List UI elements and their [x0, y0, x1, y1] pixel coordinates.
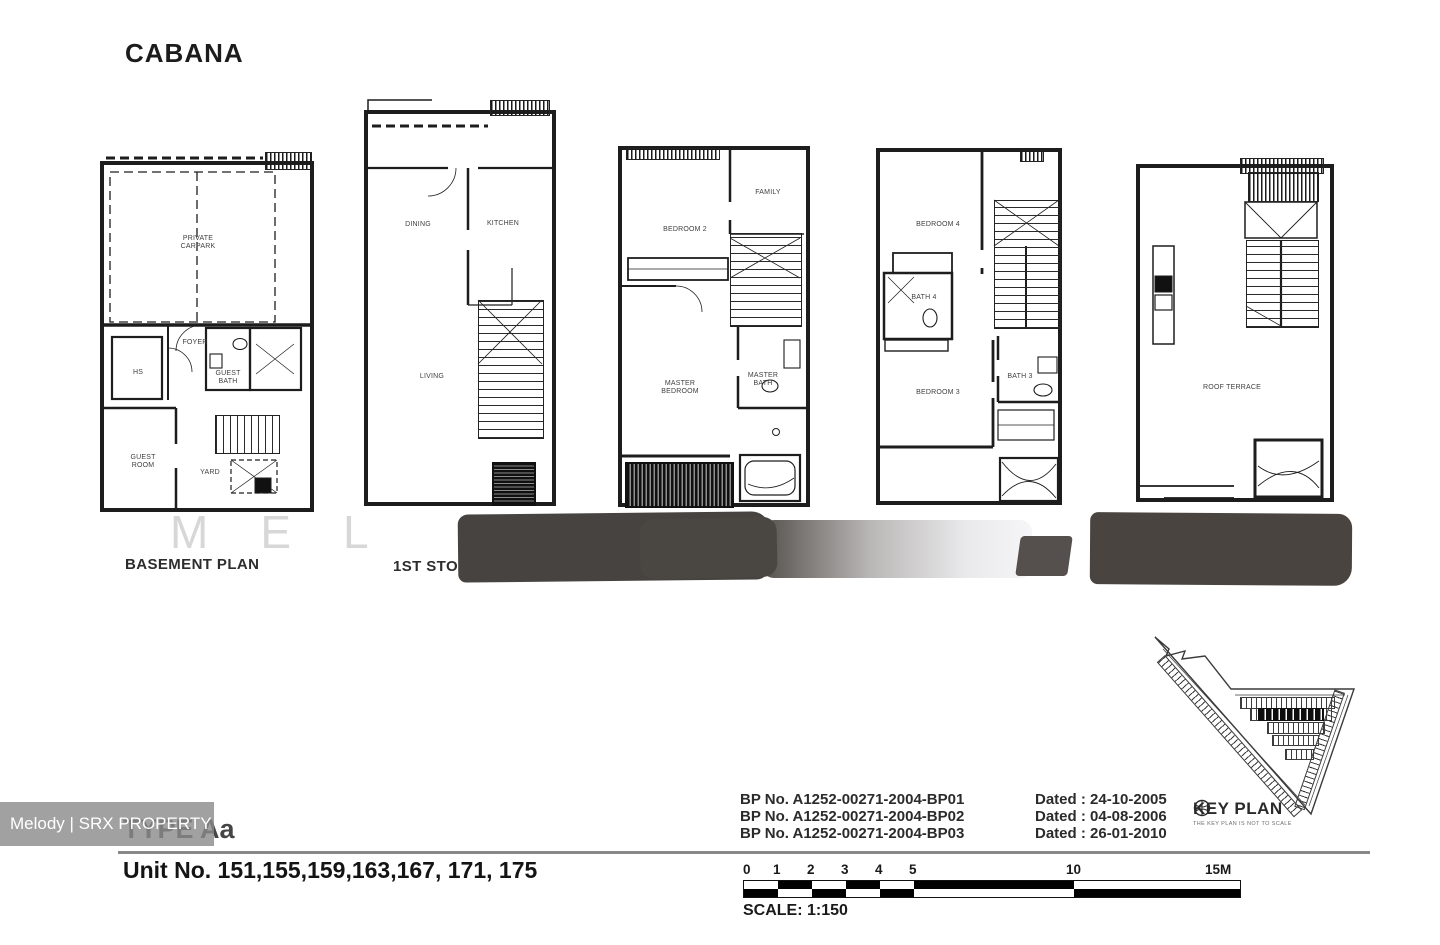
room-label-bath3: BATH 3 [1007, 373, 1032, 381]
scale-tick: 1 [773, 862, 781, 877]
first-storey-plan: DINING KITCHEN LIVING [360, 98, 560, 508]
bp-date: Dated : 04-08-2006 [1035, 808, 1167, 825]
scale-tick: 15M [1205, 862, 1231, 877]
site-units-row [1267, 722, 1325, 734]
room-label-foyer: FOYER [182, 339, 207, 347]
roof-vent-hatch [1020, 150, 1044, 162]
key-plan-title: KEY PLAN [1193, 799, 1283, 819]
scale-bar-graphic [743, 880, 1241, 898]
stairs [478, 300, 544, 439]
key-plan-note: THE KEY PLAN IS NOT TO SCALE [1193, 821, 1292, 827]
room-label-guest-bath: GUEST BATH [211, 370, 245, 386]
bp-date: Dated : 26-01-2010 [1035, 825, 1167, 842]
bp-number: BP No. A1252-00271-2004-BP02 [740, 808, 964, 825]
third-storey-plan: BEDROOM 4 BATH 4 BEDROOM 3 BATH 3 [874, 146, 1066, 508]
basement-plan: PRIVATE CARPARK FOYER HS GUEST BATH GUES… [98, 148, 317, 512]
shaft-icon [1155, 276, 1172, 292]
second-storey-plan: BEDROOM 2 FAMILY MASTER BEDROOM MASTER B… [616, 146, 812, 508]
scale-tick: 0 [743, 862, 751, 877]
bp-number: BP No. A1252-00271-2004-BP01 [740, 791, 964, 808]
sink-icon [1038, 357, 1057, 373]
highlighted-units-row [1258, 708, 1324, 721]
stairs [994, 200, 1061, 329]
scale-label: SCALE: 1:150 [743, 902, 848, 920]
room-label-family: FAMILY [755, 189, 781, 197]
site-units-row [1285, 749, 1314, 760]
room-label-bath4: BATH 4 [911, 294, 936, 302]
scale-tick: 3 [841, 862, 849, 877]
bp-approval-block: BP No. A1252-00271-2004-BP01 BP No. A125… [740, 791, 964, 842]
roof-vent-hatch [265, 152, 312, 170]
room-label-yard: YARD [200, 469, 220, 477]
room-label-master-bedroom: MASTER BEDROOM [653, 380, 707, 396]
scale-bar: 0 1 2 3 4 5 10 15M SCALE: 1:150 [743, 862, 1243, 922]
room-label-guest-room: GUEST ROOM [126, 454, 160, 470]
watermark-agent-label: Melody | SRX PROPERTY [10, 814, 212, 833]
toilet-icon [1034, 384, 1052, 396]
ghost-watermark: MEL [170, 505, 421, 559]
store-icon [255, 478, 271, 493]
louvre-panel [492, 462, 536, 506]
key-plan: KEY PLAN THE KEY PLAN IS NOT TO SCALE [1145, 625, 1375, 840]
stairs [730, 233, 802, 327]
room-label-bedroom4: BEDROOM 4 [916, 221, 960, 229]
drain-icon [773, 429, 780, 436]
roof-vent-hatch [626, 148, 720, 160]
room-label-dining: DINING [405, 221, 431, 229]
bp-date: Dated : 24-10-2005 [1035, 791, 1167, 808]
redaction-bar [639, 517, 777, 580]
unit-numbers: Unit No. 151,155,159,163,167, 171, 175 [123, 857, 537, 884]
toilet-icon [923, 309, 937, 327]
vanity-icon [784, 340, 800, 368]
room-label-living: LIVING [420, 373, 444, 381]
louvre-panel [625, 462, 734, 508]
scale-tick: 10 [1066, 862, 1081, 877]
stairs [1246, 240, 1319, 328]
scale-tick: 2 [807, 862, 815, 877]
bp-dates-block: Dated : 24-10-2005 Dated : 04-08-2006 Da… [1035, 791, 1167, 842]
floorplan-sheet: CABANA PRIVATE CARPARK FOYER [0, 0, 1440, 945]
caption-basement: BASEMENT PLAN [125, 556, 259, 573]
scale-tick: 4 [875, 862, 883, 877]
room-label-carpark: PRIVATE CARPARK [174, 235, 222, 251]
toilet-icon [233, 339, 247, 350]
redaction-bar [1090, 512, 1352, 586]
roof-plan-drawing [1134, 156, 1336, 508]
divider-rule [118, 851, 1370, 854]
redaction-smear [762, 520, 1032, 578]
roof-vent-hatch [490, 100, 550, 116]
redaction-patch [1015, 536, 1073, 576]
page-title: CABANA [125, 38, 244, 69]
room-label-master-bath: MASTER BATH [743, 372, 783, 388]
room-label-bedroom2: BEDROOM 2 [663, 226, 707, 234]
second-storey-drawing [616, 146, 812, 508]
room-label-kitchen: KITCHEN [487, 220, 519, 228]
key-plan-logo-icon [1193, 799, 1211, 817]
room-label-hs: HS [133, 369, 143, 377]
bp-number: BP No. A1252-00271-2004-BP03 [740, 825, 964, 842]
scale-tick: 5 [909, 862, 917, 877]
roof-plan: ROOF TERRACE [1134, 156, 1336, 508]
room-label-bedroom3: BEDROOM 3 [916, 389, 960, 397]
stairs [215, 415, 280, 454]
site-units-row [1272, 735, 1319, 746]
stairs [1248, 172, 1319, 202]
watermark-box: Melody | SRX PROPERTY [0, 802, 214, 846]
bathtub-icon [745, 461, 795, 495]
sink-icon [210, 354, 222, 368]
room-label-roof-terrace: ROOF TERRACE [1203, 384, 1261, 392]
